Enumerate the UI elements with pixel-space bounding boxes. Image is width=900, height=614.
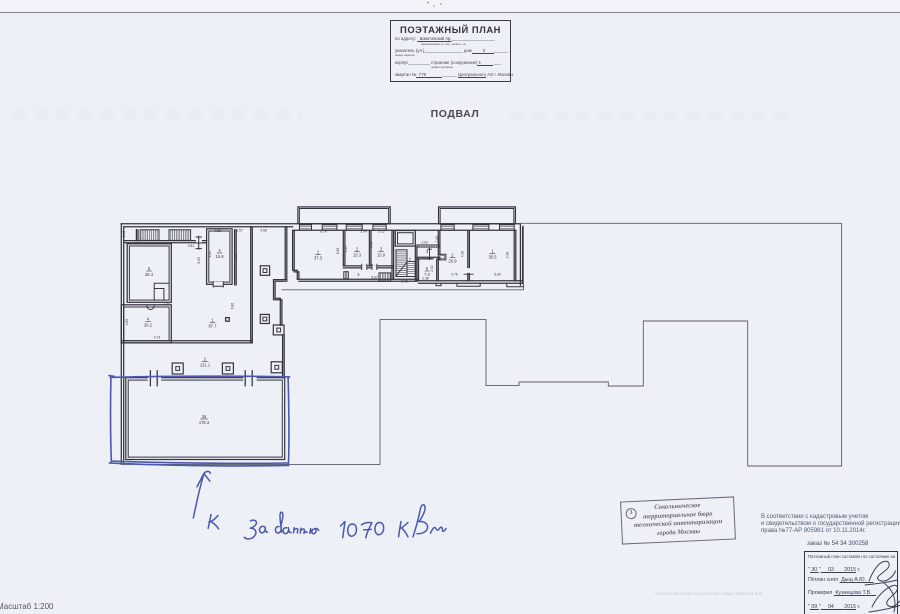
svg-text:4.38: 4.38 bbox=[505, 252, 509, 259]
svg-text:8.92: 8.92 bbox=[208, 251, 212, 258]
svg-text:26.2: 26.2 bbox=[144, 323, 153, 328]
svg-text:26.4: 26.4 bbox=[145, 272, 154, 277]
svg-text:3.75: 3.75 bbox=[451, 273, 458, 277]
svg-text:13.9: 13.9 bbox=[377, 253, 386, 258]
svg-text:131.1: 131.1 bbox=[200, 363, 211, 368]
svg-text:4.73: 4.73 bbox=[154, 336, 161, 340]
svg-text:2: 2 bbox=[356, 246, 359, 251]
svg-text:5: 5 bbox=[426, 266, 429, 271]
svg-text:1.97: 1.97 bbox=[236, 228, 243, 232]
svg-text:4: 4 bbox=[357, 272, 360, 277]
svg-text:13.3: 13.3 bbox=[353, 253, 362, 258]
svg-text:3.81: 3.81 bbox=[188, 244, 195, 248]
svg-text:6.86: 6.86 bbox=[231, 303, 235, 310]
svg-text:2.02: 2.02 bbox=[430, 265, 434, 272]
svg-text:37.3: 37.3 bbox=[314, 256, 323, 261]
svg-text:1.40: 1.40 bbox=[122, 231, 126, 238]
svg-text:5.97: 5.97 bbox=[371, 276, 378, 280]
svg-text:2.83: 2.83 bbox=[215, 229, 222, 233]
svg-text:2: 2 bbox=[451, 252, 454, 257]
svg-text:4.24: 4.24 bbox=[344, 246, 348, 253]
svg-text:2.38: 2.38 bbox=[422, 276, 429, 280]
svg-text:6.14: 6.14 bbox=[320, 229, 327, 233]
svg-text:1: 1 bbox=[317, 249, 320, 254]
svg-text:3: 3 bbox=[380, 246, 383, 251]
svg-text:3а: 3а bbox=[202, 414, 207, 419]
svg-text:4.38: 4.38 bbox=[461, 251, 465, 258]
svg-text:2: 2 bbox=[204, 356, 207, 361]
svg-text:1: 1 bbox=[211, 317, 214, 322]
svg-text:5: 5 bbox=[148, 266, 151, 271]
svg-text:3: 3 bbox=[218, 248, 221, 253]
svg-text:1: 1 bbox=[491, 248, 494, 253]
svg-text:4: 4 bbox=[147, 316, 150, 321]
svg-text:1.40: 1.40 bbox=[435, 236, 439, 243]
svg-text:4.40: 4.40 bbox=[370, 242, 374, 249]
svg-text:б: б bbox=[409, 257, 411, 261]
svg-text:7.18: 7.18 bbox=[234, 254, 238, 261]
svg-text:2.02: 2.02 bbox=[421, 241, 428, 245]
svg-text:35.5: 35.5 bbox=[489, 255, 498, 260]
svg-text:178.3: 178.3 bbox=[199, 420, 210, 425]
svg-text:4.80: 4.80 bbox=[125, 319, 129, 326]
svg-text:6.95: 6.95 bbox=[336, 248, 340, 255]
svg-text:3.04: 3.04 bbox=[360, 229, 367, 233]
svg-text:26.9: 26.9 bbox=[449, 259, 458, 264]
svg-text:4.98: 4.98 bbox=[260, 229, 267, 233]
svg-text:87.7: 87.7 bbox=[209, 324, 218, 329]
svg-text:3.12: 3.12 bbox=[378, 229, 385, 233]
svg-text:15.9: 15.9 bbox=[216, 254, 225, 259]
svg-text:2.08: 2.08 bbox=[401, 279, 408, 283]
svg-text:5.20: 5.20 bbox=[197, 257, 201, 264]
svg-text:5.69: 5.69 bbox=[494, 273, 501, 277]
